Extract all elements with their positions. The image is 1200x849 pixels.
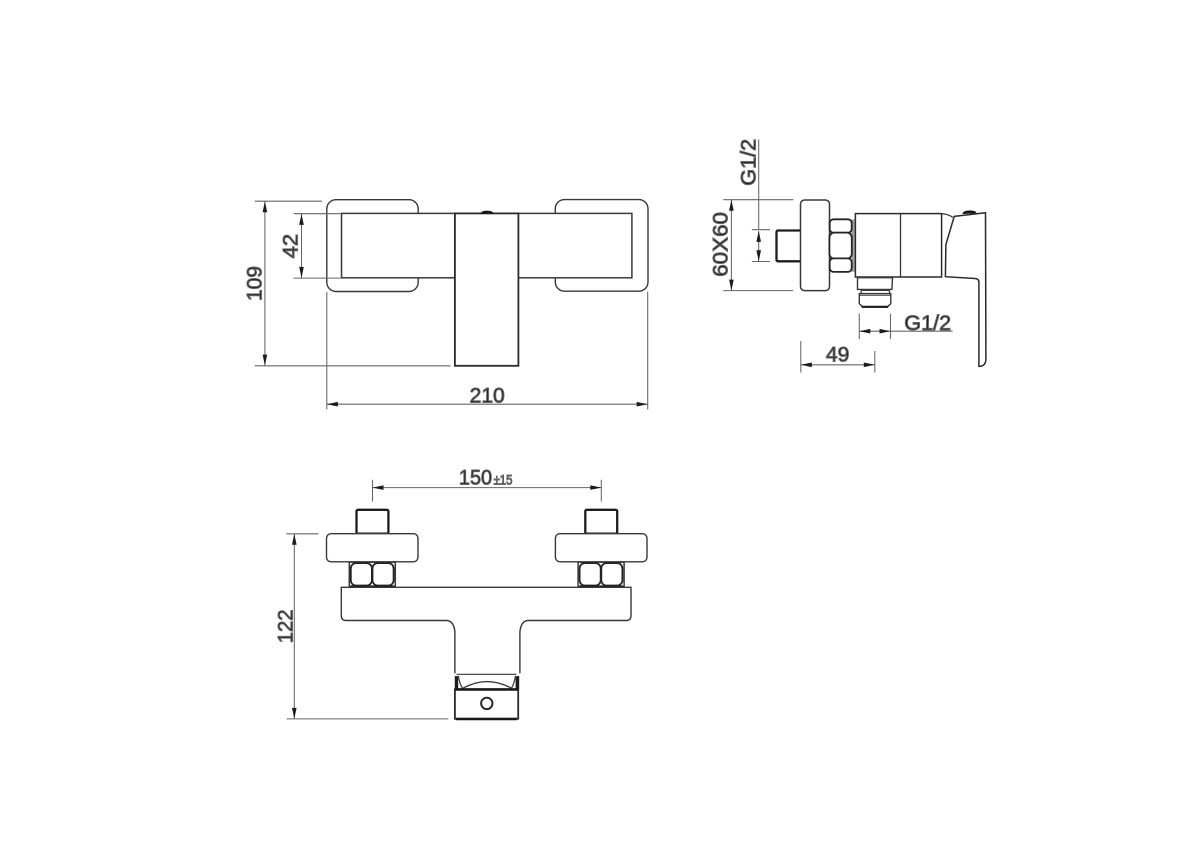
svg-text:G1/2: G1/2: [904, 311, 951, 335]
svg-text:60X60: 60X60: [708, 212, 732, 277]
svg-text:G1/2: G1/2: [737, 139, 761, 186]
svg-text:150: 150: [459, 465, 492, 489]
svg-text:49: 49: [826, 343, 850, 367]
svg-text:±15: ±15: [494, 472, 513, 487]
svg-text:210: 210: [470, 383, 505, 407]
svg-text:109: 109: [243, 266, 267, 301]
svg-text:122: 122: [274, 610, 298, 644]
svg-text:42: 42: [278, 234, 302, 259]
